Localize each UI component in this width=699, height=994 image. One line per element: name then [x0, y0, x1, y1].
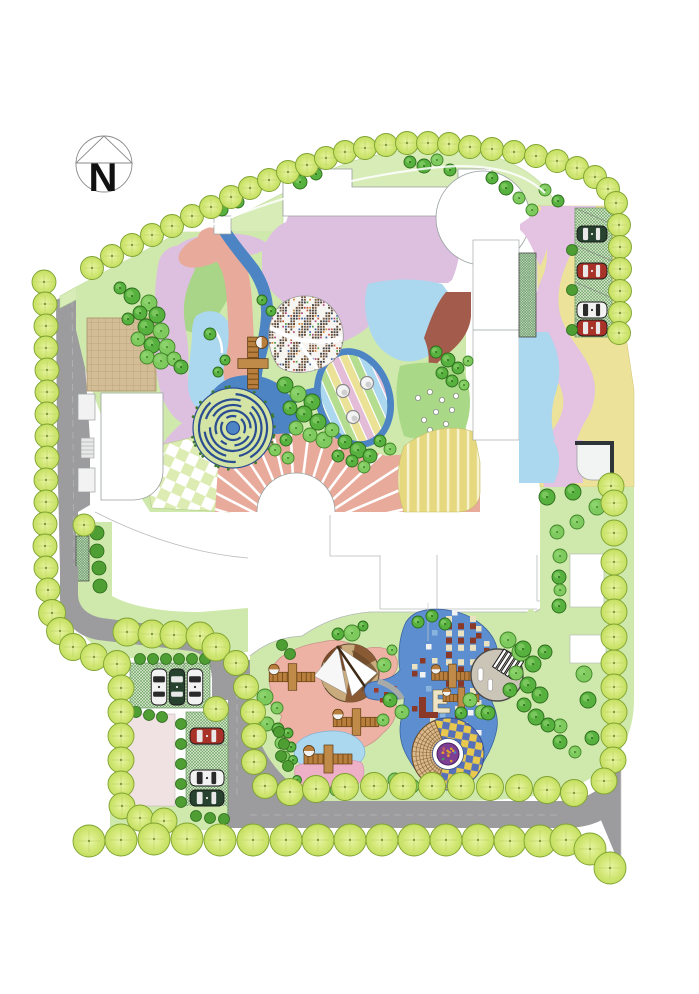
svg-text:N: N — [89, 156, 118, 200]
